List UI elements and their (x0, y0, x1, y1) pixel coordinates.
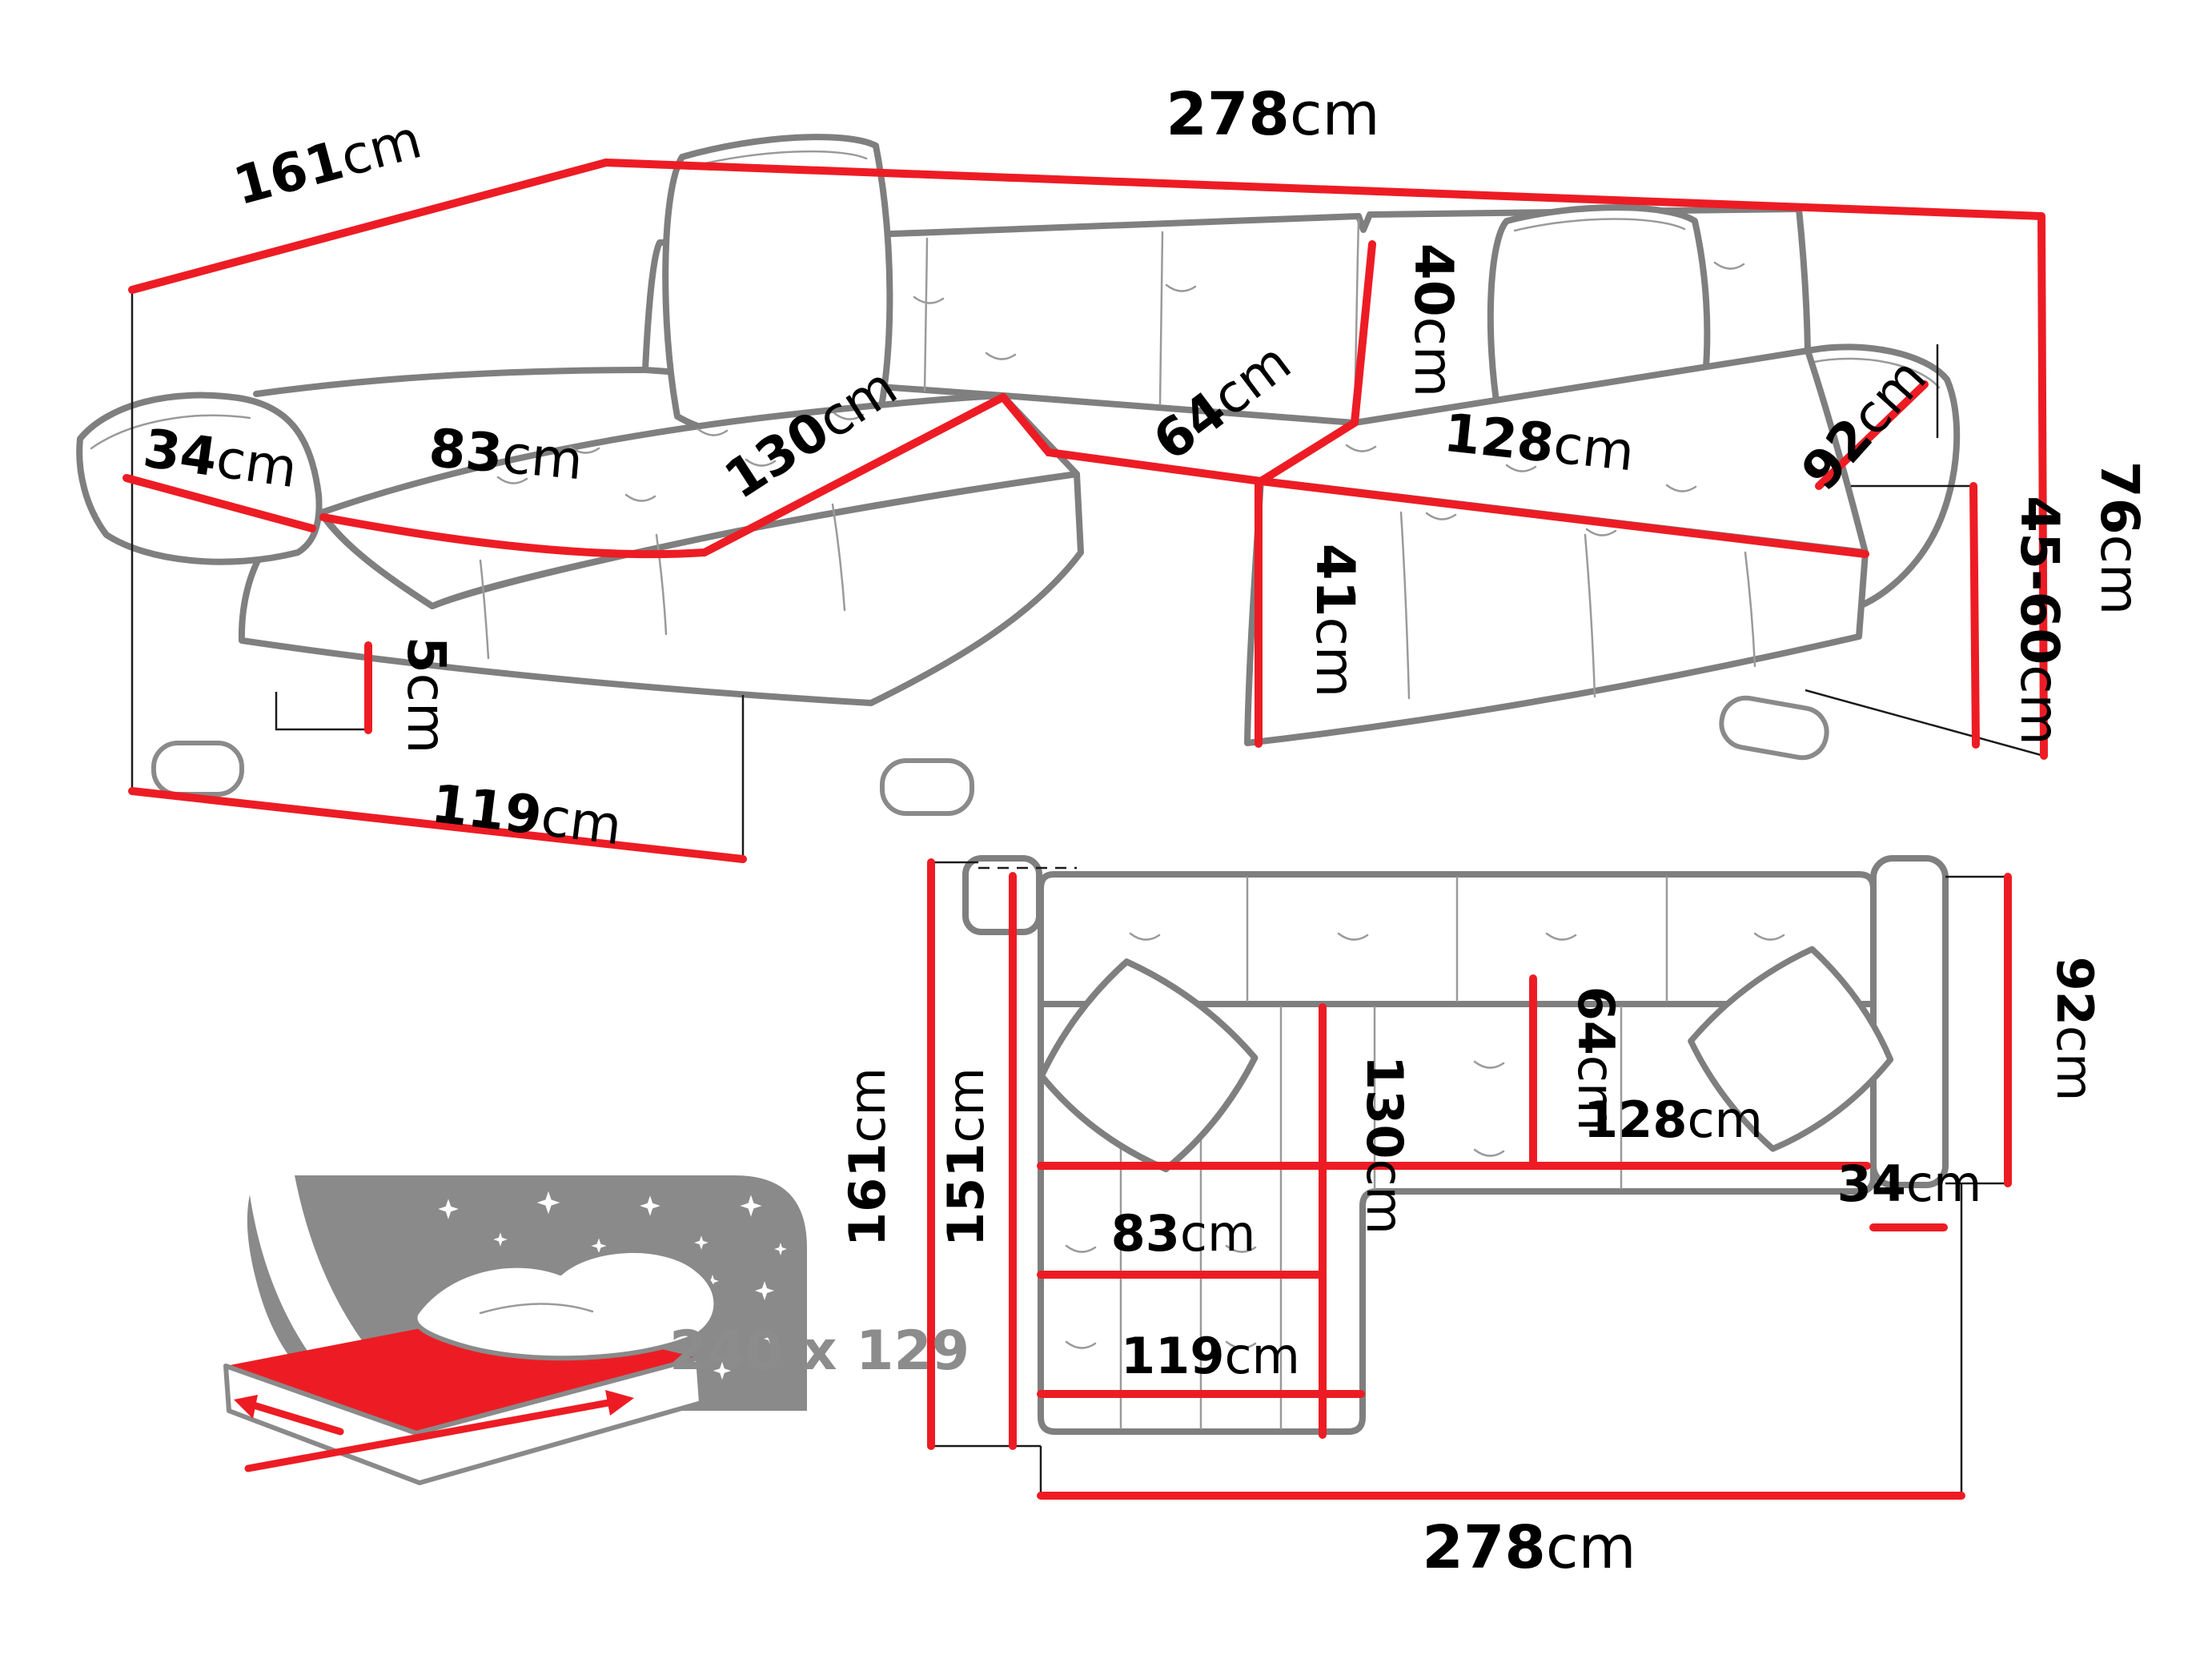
top-left-side-panel (965, 858, 1039, 932)
label-seat-height: 41cm (1304, 544, 1366, 697)
label-top-total-width: 278cm (1422, 1513, 1636, 1582)
chaise-back-edge (256, 370, 645, 394)
label-top-chaise-width: 119cm (1121, 1327, 1300, 1385)
front-view-sofa-drawing (79, 137, 1957, 813)
sofa-leg (1718, 694, 1831, 761)
label-chaise-length: 119cm (428, 773, 625, 857)
sofa-leg (882, 761, 972, 813)
label-total-width: 278cm (1166, 80, 1379, 149)
label-top-chaise-inner-length: 130cm (1355, 1055, 1414, 1235)
label-top-total-depth: 161cm (838, 1067, 897, 1247)
label-top-armrest-depth: 92cm (2045, 957, 2104, 1102)
label-top-seat-width: 128cm (1584, 1091, 1763, 1149)
sleeping-size-label: 240 x 129 (669, 1320, 970, 1383)
top-view: 161cm 151cm 130cm 64cm 128cm 34cm 92cm 8… (838, 858, 2104, 1582)
label-top-depth-without-back: 151cm (937, 1067, 995, 1247)
label-total-depth: 161cm (227, 108, 428, 217)
label-total-height: 76cm (2089, 461, 2150, 615)
top-right-armrest (1873, 858, 1945, 1185)
front-view: 278cm 161cm 34cm 83cm 130cm 40cm 64cm 12… (79, 80, 2150, 859)
label-leg-height: 5cm (395, 637, 457, 754)
top-view-sofa-drawing (965, 858, 1945, 1432)
sofa-leg (154, 743, 242, 794)
label-seat-height-range: 45-60cm (2009, 496, 2070, 745)
label-top-armrest-width: 34cm (1837, 1155, 1982, 1213)
sofa-dimension-diagram: 278cm 161cm 34cm 83cm 130cm 40cm 64cm 12… (0, 0, 2212, 1659)
label-top-chaise-seat-width: 83cm (1111, 1204, 1256, 1263)
dim-line-seat-height-range (1973, 486, 1976, 745)
diagram-page: 278cm 161cm 34cm 83cm 130cm 40cm 64cm 12… (0, 0, 2212, 1659)
label-backrest-height: 40cm (1403, 243, 1464, 397)
